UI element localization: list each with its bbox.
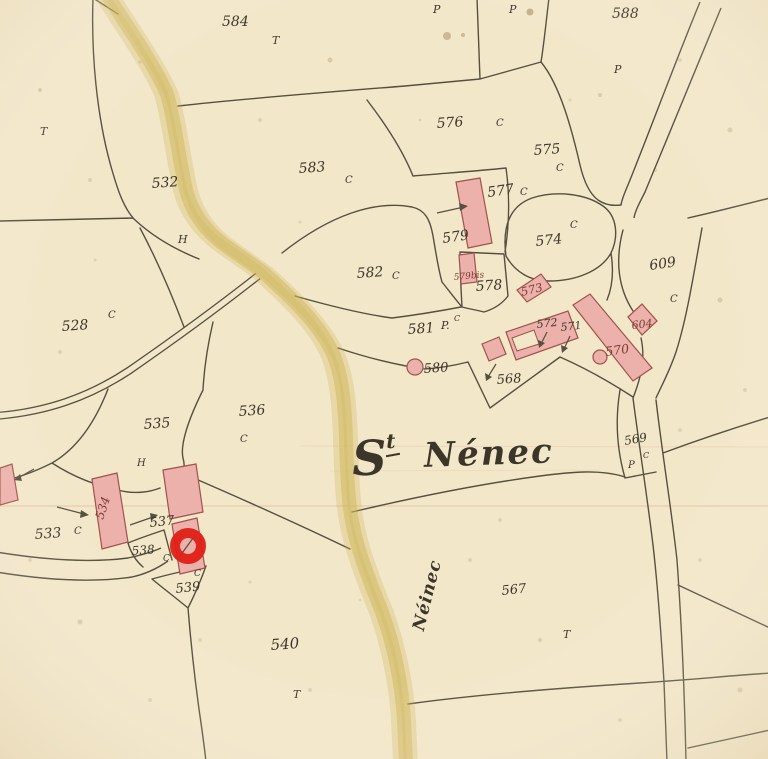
parcel-label-c: C <box>520 187 528 198</box>
parcel-label-580: 580 <box>423 360 449 377</box>
parcel-label-h: H <box>177 233 188 246</box>
parcel-label-576: 576 <box>436 114 464 132</box>
parcel-label-574: 574 <box>535 231 563 250</box>
parcel-label-536: 536 <box>238 402 266 420</box>
parcel-label-c: C <box>163 554 170 564</box>
svg-text:Nénec: Nénec <box>422 431 554 476</box>
parcel-label-571: 571 <box>560 319 582 334</box>
parcel-label-581: 581 <box>407 320 435 338</box>
parcel-label-572: 572 <box>536 316 558 331</box>
parcel-label-c: C <box>345 175 353 186</box>
parcel-label-c: C <box>454 314 460 323</box>
parcel-label-540: 540 <box>270 634 300 654</box>
parcel-label-568: 568 <box>496 371 522 388</box>
parcel-label-p: P <box>508 3 517 16</box>
parcel-label-c: C <box>74 526 82 537</box>
parcel-label-575: 575 <box>533 141 561 159</box>
parcel-label-588: 588 <box>612 6 639 22</box>
parcel-label-533: 533 <box>34 525 62 543</box>
parcel-label-538: 538 <box>131 542 155 558</box>
parcel-label-532: 532 <box>151 174 179 192</box>
parcel-label-567: 567 <box>501 581 528 599</box>
building-580-round <box>407 359 423 375</box>
parcel-label-c: C <box>496 118 504 129</box>
parcel-label-h: H <box>136 458 146 469</box>
parcel-label-c: C <box>570 220 578 231</box>
building-537 <box>163 464 203 519</box>
parcel-label-582: 582 <box>356 264 384 282</box>
parcel-label-c: C <box>670 294 678 305</box>
parcel-label-604: 604 <box>631 317 653 332</box>
parcel-label-528: 528 <box>61 317 89 335</box>
cadastral-map: 584TPP588PT576C575C532583C577CH579574C60… <box>0 0 768 759</box>
map-canvas: 584TPP588PT576C575C532583C577CH579574C60… <box>0 0 768 759</box>
parcel-label-c: C <box>643 451 649 460</box>
parcel-label-c: C <box>392 271 400 282</box>
parcel-label-p: P <box>613 63 622 76</box>
parcel-label-583: 583 <box>298 159 326 177</box>
parcel-label-c: C <box>240 434 248 445</box>
parcel-label-c: C <box>194 569 201 579</box>
parcel-label-c: C <box>556 163 564 174</box>
parcel-label-578: 578 <box>475 277 503 295</box>
parcel-label-535: 535 <box>143 415 171 433</box>
parcel-label-p: P <box>627 460 635 471</box>
parcel-label-537: 537 <box>149 513 176 531</box>
parcel-label-584: 584 <box>222 14 249 30</box>
parcel-label-539: 539 <box>175 579 201 597</box>
parcel-label-p.: P. <box>440 319 450 332</box>
parcel-label-c: C <box>108 310 116 321</box>
parcel-label-p: P <box>432 3 441 16</box>
